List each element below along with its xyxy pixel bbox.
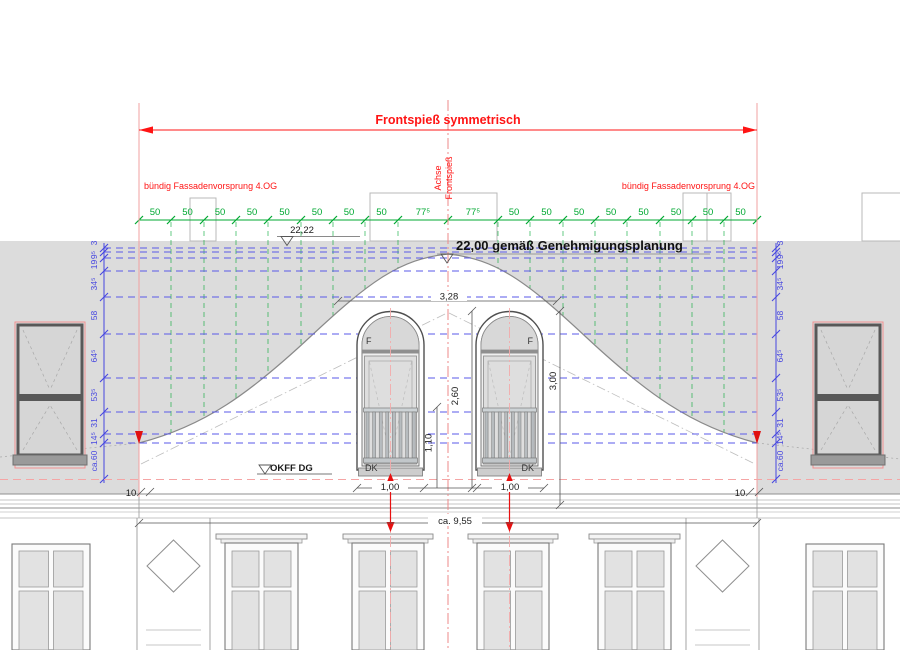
flush-note-right: bündig Fassadenvorsprung 4.OG <box>622 181 755 191</box>
window-pane <box>54 591 84 650</box>
green-dim-label: 50 <box>312 207 323 218</box>
window-pane <box>813 551 843 587</box>
window-pane <box>516 591 543 650</box>
window-pane <box>54 551 84 587</box>
existing-window-right <box>811 322 885 468</box>
top-dimension-label: Frontspieß symmetrisch <box>375 113 520 127</box>
railing-bar <box>531 412 534 458</box>
lower-window <box>216 534 307 650</box>
green-dim-label: 50 <box>574 207 585 218</box>
window-pane <box>359 591 386 650</box>
window-cornice-cap <box>589 534 680 539</box>
window-pane <box>813 591 843 650</box>
blue-dim-label-right: 31 <box>775 418 785 428</box>
blue-dim-label-right: 19 <box>775 260 785 270</box>
okff-label: OKFF DG <box>270 463 313 474</box>
window-cornice-step <box>594 539 675 543</box>
window-dk-label-right: DK <box>521 463 534 473</box>
blue-dim-label-left: 19 <box>89 260 99 270</box>
railing-bar <box>492 412 495 458</box>
railing-bar <box>379 412 382 458</box>
green-dim-label: 77⁵ <box>416 207 431 218</box>
level-2200-label: 22,00 gemäß Genehmigungsplanung <box>456 238 683 253</box>
green-dim-label: 50 <box>638 207 649 218</box>
dim-arrow-left <box>139 126 153 133</box>
blue-dim-label-right: 53⁵ <box>775 389 785 402</box>
blue-dim-label-left: 14⁵ <box>89 432 99 445</box>
window-cornice-cap <box>343 534 433 539</box>
green-dim-label: 50 <box>509 207 520 218</box>
railing-bar <box>386 412 389 458</box>
axis-label-line2: Frontspieß <box>444 156 454 200</box>
green-dim-label: 50 <box>376 207 387 218</box>
window-dk-label-left: DK <box>365 463 378 473</box>
green-dim-label: 50 <box>150 207 161 218</box>
window-pane <box>264 591 291 650</box>
railing-bar <box>505 412 508 458</box>
green-dim-label: 50 <box>344 207 355 218</box>
lower-window <box>343 534 433 650</box>
railing-bar <box>373 412 376 458</box>
chimney-outline <box>862 193 900 241</box>
window-pane <box>391 551 418 587</box>
arrow-head-down <box>387 522 395 532</box>
diamond-ornament <box>147 540 200 592</box>
facade-elevation-svg: 505050505050505077⁵77⁵5050505050505050 3… <box>0 0 900 650</box>
elevation-drawing-canvas: 505050505050505077⁵77⁵5050505050505050 3… <box>0 0 900 650</box>
window-cornice-step <box>221 539 302 543</box>
green-dim-label: 50 <box>671 207 682 218</box>
window-pane <box>264 551 291 587</box>
blue-dim-label-right: 9⁵ <box>775 251 785 259</box>
green-dim-label: 50 <box>735 207 746 218</box>
green-dim-label: 50 <box>279 207 290 218</box>
blue-dim-label-right: 3 <box>775 240 785 245</box>
window-pane <box>637 591 664 650</box>
railing-bar <box>498 412 501 458</box>
arrow-head-down <box>506 522 514 532</box>
axis-label-line1: Achse <box>433 165 443 190</box>
blue-dim-label-left: 9⁵ <box>89 251 99 259</box>
window-pane <box>637 551 664 587</box>
window-cornice-step <box>348 539 428 543</box>
green-dim-label: 50 <box>247 207 258 218</box>
dim-328-label: 3,28 <box>440 292 459 303</box>
window-pane <box>848 551 878 587</box>
green-dim-label: 50 <box>606 207 617 218</box>
pilaster <box>137 518 210 650</box>
blue-dim-label-left: 64⁵ <box>89 350 99 363</box>
blue-dim-label-right: 34⁵ <box>775 278 785 291</box>
blue-dim-label-left: 31 <box>89 418 99 428</box>
blue-dim-label-left: 34⁵ <box>89 278 99 291</box>
railing-bar <box>525 412 528 458</box>
window-pane <box>19 591 49 650</box>
window-pane <box>232 591 259 650</box>
railing-bar <box>485 412 488 458</box>
lower-window <box>12 544 90 650</box>
window-pane <box>848 591 878 650</box>
green-dim-label: 50 <box>541 207 552 218</box>
window-pane <box>516 551 543 587</box>
top-dimension: Frontspieß symmetrisch <box>139 113 757 134</box>
green-dim-label: 50 <box>182 207 193 218</box>
railing-bar <box>412 412 415 458</box>
window-pane <box>484 551 511 587</box>
window-f-label-right: F <box>528 336 534 346</box>
lower-window <box>806 544 884 650</box>
dim-100-right-label: 1,00 <box>501 482 520 493</box>
lower-window <box>468 534 558 650</box>
green-dim-label: 50 <box>215 207 226 218</box>
dim-10-left-label: 10 <box>126 488 137 499</box>
lower-window <box>589 534 680 650</box>
railing-bar <box>511 412 514 458</box>
railing-bar <box>366 412 369 458</box>
blue-dim-label-right: 14⁵ <box>775 432 785 445</box>
dim-arrow-right <box>743 126 757 133</box>
window-cornice-step <box>473 539 553 543</box>
window-pane <box>605 591 632 650</box>
diamond-ornament <box>696 540 749 592</box>
blue-dim-label-left: 3 <box>89 240 99 245</box>
window-cornice-cap <box>468 534 558 539</box>
dim-100-left-label: 1,00 <box>381 482 400 493</box>
railing-bar <box>399 412 402 458</box>
dim-total-label: ca. 9,55 <box>438 516 472 527</box>
pilaster <box>686 518 759 650</box>
window-f-label-left: F <box>366 336 372 346</box>
railing-bar <box>406 412 409 458</box>
blue-dim-label-left: 58 <box>89 311 99 321</box>
green-dim-label: 77⁵ <box>466 207 481 218</box>
dim-10-right-label: 10 <box>735 488 746 499</box>
blue-dim-label-right: 58 <box>775 311 785 321</box>
railing-bar <box>392 412 395 458</box>
window-pane <box>391 591 418 650</box>
blue-dim-label-right: ca.60 <box>775 450 785 471</box>
window-pane <box>19 551 49 587</box>
railing-bar <box>518 412 521 458</box>
existing-window-left <box>13 322 87 468</box>
green-dim-label: 50 <box>703 207 714 218</box>
window-pane <box>484 591 511 650</box>
blue-dim-label-left: ca.60 <box>89 450 99 471</box>
dim-300-label: 3,00 <box>548 372 559 391</box>
window-pane <box>605 551 632 587</box>
blue-dim-label-right: 64⁵ <box>775 350 785 363</box>
dim-260-label: 2,60 <box>450 387 461 406</box>
blue-dim-label-left: 53⁵ <box>89 389 99 402</box>
window-cornice-cap <box>216 534 307 539</box>
level-2222-label: 22,22 <box>290 225 314 236</box>
window-pane <box>232 551 259 587</box>
flush-note-left: bündig Fassadenvorsprung 4.OG <box>144 181 277 191</box>
window-pane <box>359 551 386 587</box>
dim-110-label: 1,10 <box>424 434 435 453</box>
